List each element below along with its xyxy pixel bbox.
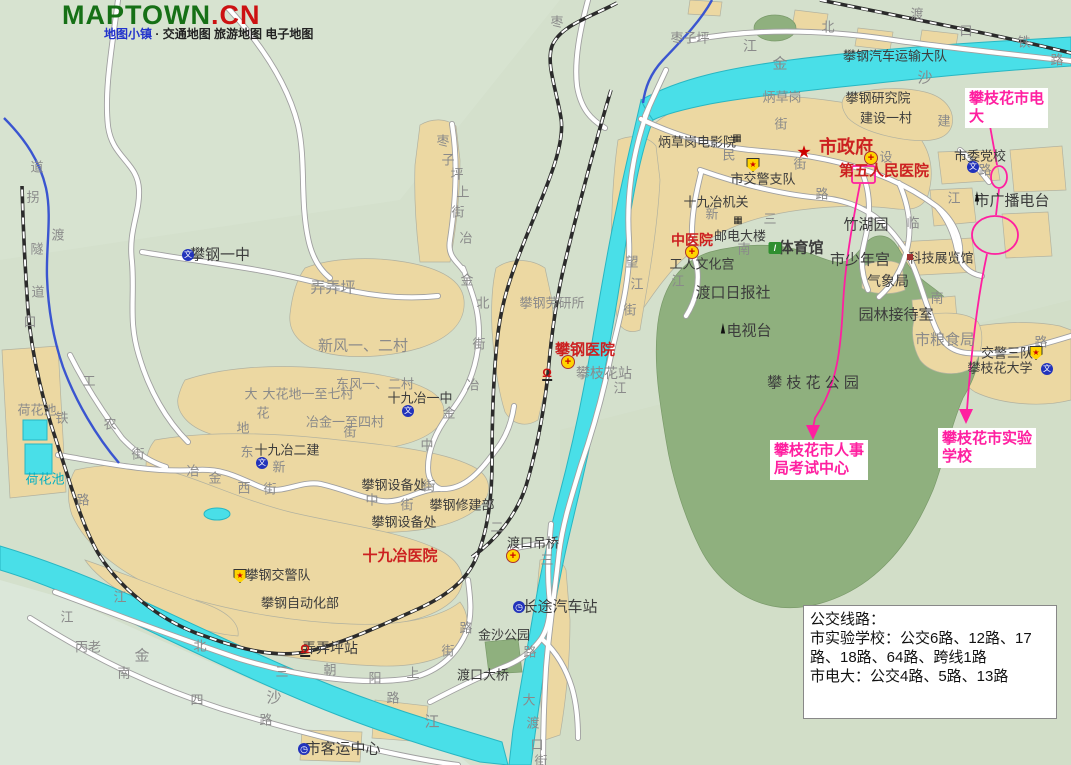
tagline-separator: ·	[155, 27, 159, 41]
infobox-line1: 公交线路：	[810, 610, 1050, 629]
logo-text-green: MAPTOWN	[62, 0, 211, 30]
logo-tagline: 地图小镇 · 交通地图 旅游地图 电子地图	[104, 28, 313, 40]
school-icon: 文	[182, 249, 194, 261]
tower-icon: ▲	[719, 321, 726, 339]
logo-wordmark: MAPTOWN.CN	[62, 2, 313, 28]
infobox-line3: 路、18路、64路、跨线1路	[810, 648, 1050, 667]
annotation-shiyan-line1: 攀枝花市实验	[942, 430, 1032, 448]
star-icon: ★	[796, 144, 811, 161]
school-icon: 文	[1041, 363, 1053, 375]
school-icon: 文	[256, 457, 268, 469]
sport-icon: /	[769, 242, 782, 254]
map-stage: 枣枣子坪江金沙北渡口铁路攀钢汽车运输大队炳草岗攀钢研究院建设一村建炳草岗电影院民…	[0, 0, 1071, 765]
reddot-icon	[907, 254, 913, 260]
tower-icon: ▲	[973, 189, 980, 207]
site-logo[interactable]: MAPTOWN.CN 地图小镇 · 交通地图 旅游地图 电子地图	[62, 2, 313, 40]
hospital-icon: +	[864, 151, 878, 165]
school-icon: 文	[402, 405, 414, 417]
station-icon: Ω	[542, 367, 552, 381]
hospital-icon: +	[561, 355, 575, 369]
infobox-line4: 市电大：公交4路、5路、13路	[810, 667, 1050, 686]
annotation-dianda-line2: 大	[969, 108, 1044, 126]
logo-text-red: .CN	[211, 0, 261, 30]
bus-icon: ◷	[298, 743, 310, 755]
bus-icon: ◷	[513, 601, 525, 613]
annotation-renshi-line2: 局考试中心	[774, 460, 864, 478]
annotation-dianda: 攀枝花市电 大	[965, 88, 1048, 128]
annotation-dianda-line1: 攀枝花市电	[969, 90, 1044, 108]
infobox-line2: 市实验学校：公交6路、12路、17	[810, 629, 1050, 648]
annotation-shiyan-line2: 学校	[942, 448, 1032, 466]
building-icon: ▦	[733, 216, 742, 226]
hospital-icon: +	[685, 245, 699, 259]
bus-routes-infobox: 公交线路： 市实验学校：公交6路、12路、17 路、18路、64路、跨线1路 市…	[803, 605, 1057, 719]
annotation-shiyan: 攀枝花市实验 学校	[938, 428, 1036, 468]
hospital-icon: +	[506, 549, 520, 563]
annotation-renshi-line1: 攀枝花市人事	[774, 442, 864, 460]
annotation-renshi: 攀枝花市人事 局考试中心	[770, 440, 868, 480]
cinema-icon: ▦	[732, 134, 741, 144]
school-icon: 文	[967, 161, 979, 173]
tagline-brand: 地图小镇	[104, 27, 152, 41]
dianda-link-line	[996, 189, 999, 215]
tagline-rest: 交通地图 旅游地图 电子地图	[163, 27, 314, 41]
station-icon: Ω	[300, 643, 310, 657]
